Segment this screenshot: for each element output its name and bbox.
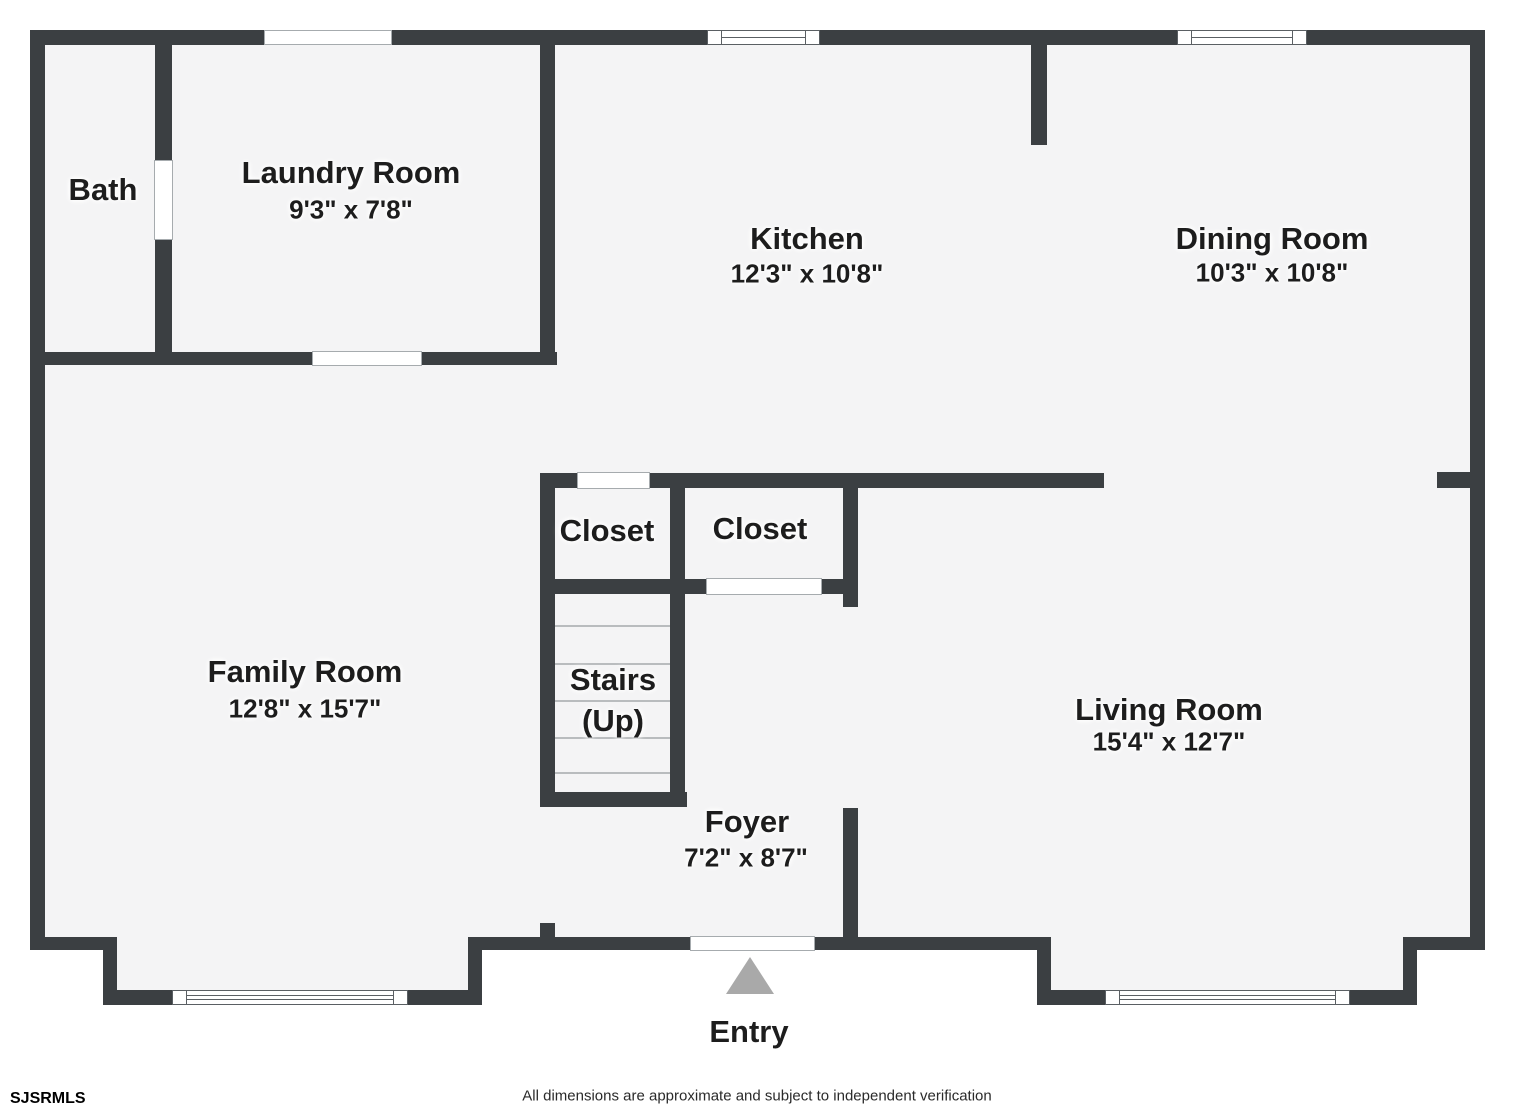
window-cap <box>186 990 187 1005</box>
wall-closet1-bottom <box>540 579 685 594</box>
family-room-window <box>172 990 408 1005</box>
window-cap <box>805 30 806 45</box>
wall-exterior-right <box>1470 30 1485 950</box>
foyer-label: Foyer <box>705 804 789 840</box>
wall-living-right-stub <box>1437 472 1470 488</box>
disclaimer-text: All dimensions are approximate and subje… <box>522 1088 991 1105</box>
stair-tread <box>555 625 670 627</box>
laundry-top-opening <box>264 30 392 45</box>
laundry-bottom-opening <box>312 351 422 366</box>
wall-bottom-right-h <box>1403 937 1485 950</box>
stair-tread <box>555 772 670 774</box>
laundry-dims: 9'3" x 7'8" <box>289 195 413 226</box>
foyer-dims: 7'2" x 8'7" <box>684 843 808 874</box>
wall-laundry-bottom <box>30 352 557 365</box>
window-glass-line <box>1192 37 1292 38</box>
closet2-label: Closet <box>713 511 808 547</box>
stair-tread <box>555 700 670 702</box>
dining-room-dims: 10'3" x 10'8" <box>1196 258 1349 289</box>
bath-door-opening <box>154 160 173 240</box>
wall-stairs-left <box>540 473 555 807</box>
window-glass-line <box>187 999 393 1000</box>
window-glass-line <box>1120 995 1335 996</box>
window-glass-line <box>187 995 393 996</box>
closet2-door-opening <box>706 578 822 595</box>
bath-label: Bath <box>69 172 138 208</box>
living-room-window <box>1105 990 1350 1005</box>
living-room-dims: 15'4" x 12'7" <box>1093 727 1246 758</box>
dining-room-label: Dining Room <box>1176 221 1369 257</box>
kitchen-label: Kitchen <box>750 221 864 257</box>
kitchen-window <box>707 30 820 45</box>
closet1-door-opening <box>577 472 650 489</box>
floor-plan: Bath Laundry Room 9'3" x 7'8" Kitchen 12… <box>0 0 1515 1112</box>
family-room-dims: 12'8" x 15'7" <box>229 694 382 725</box>
wall-entry-left-stub <box>540 923 555 939</box>
wall-kitchen-dining-stub <box>1031 45 1047 145</box>
wall-stairs-right <box>670 473 685 807</box>
wall-stairs-bottom <box>540 792 687 807</box>
wall-laundry-right <box>540 45 555 365</box>
laundry-label: Laundry Room <box>242 155 461 191</box>
wall-exterior-left <box>30 30 45 950</box>
window-cap <box>393 990 394 1005</box>
kitchen-dims: 12'3" x 10'8" <box>731 259 884 290</box>
window-glass-line <box>722 37 805 38</box>
wall-bottom-mid-left <box>468 937 690 950</box>
window-cap <box>1119 990 1120 1005</box>
entry-label: Entry <box>709 1014 788 1050</box>
mls-brand-label: SJSRMLS <box>10 1090 86 1108</box>
window-glass-line <box>1120 999 1335 1000</box>
window-cap <box>1335 990 1336 1005</box>
wall-closet2-right <box>843 473 858 607</box>
dining-window <box>1177 30 1307 45</box>
window-cap <box>1292 30 1293 45</box>
family-room-label: Family Room <box>208 654 403 690</box>
wall-foyer-right <box>843 808 858 950</box>
closet1-label: Closet <box>560 513 655 549</box>
entry-door-opening <box>690 936 815 951</box>
stairs-label: Stairs <box>570 662 656 698</box>
entry-arrow-icon <box>726 957 774 994</box>
living-room-label: Living Room <box>1075 692 1263 728</box>
stairs-up-label: (Up) <box>582 703 644 739</box>
